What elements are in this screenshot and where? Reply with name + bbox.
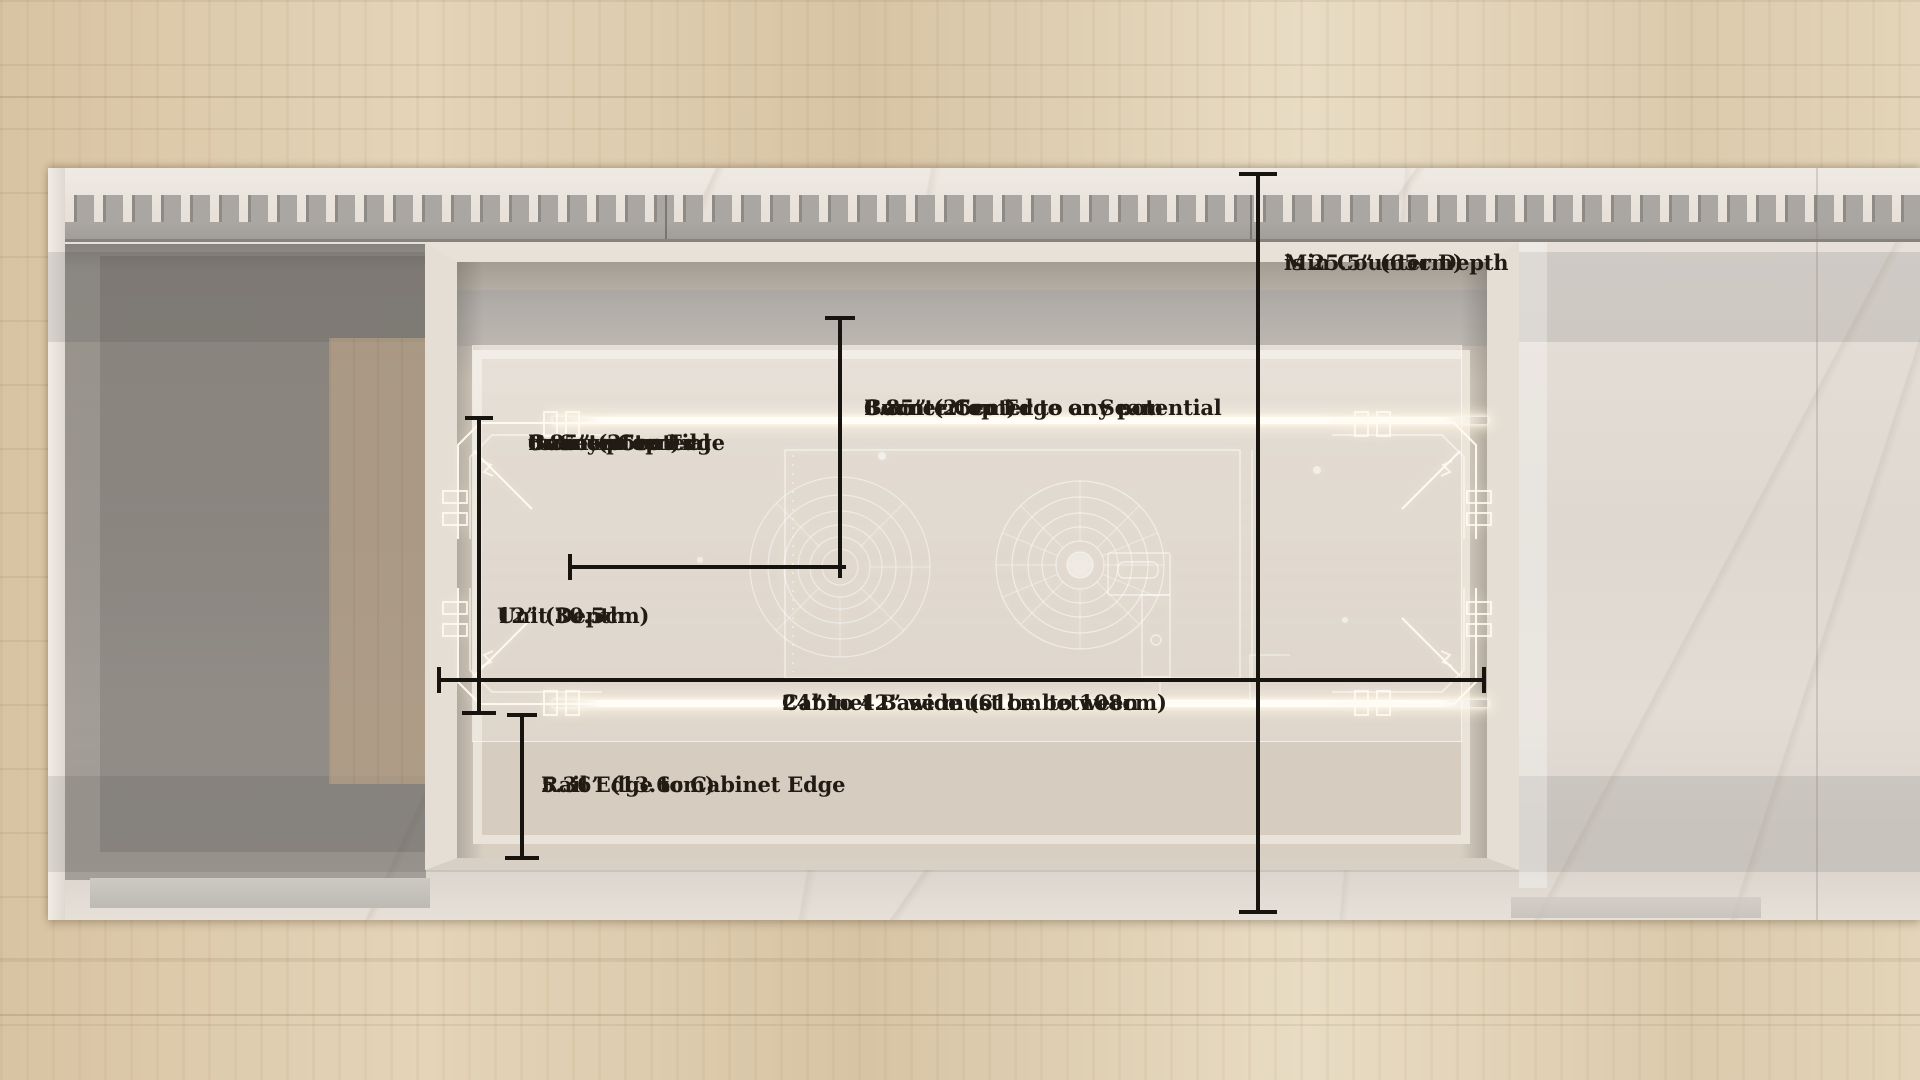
cooktop-installation-diagram: Min Counter Depth is 25.5” (65cm) 8.85” …: [0, 0, 1920, 1080]
dim-line-rail-edge: [520, 713, 524, 860]
cabinet-shadow-band: [457, 290, 1487, 346]
bottom-ledge-right: [1511, 897, 1761, 918]
dim-line-burner-center-vertical: [838, 316, 842, 578]
vent-grille-teeth: [65, 195, 1920, 222]
vent-grille: [65, 195, 1920, 242]
counter-highlight-strip: [1519, 242, 1547, 888]
counter-seam: [1816, 168, 1818, 920]
label-line: Unit Depth: [497, 603, 625, 629]
left-cabinet-opening: [65, 244, 426, 880]
dim-line-unit-depth: [477, 416, 481, 715]
dim-line-burner-center-horizontal: [568, 565, 846, 569]
label-line: Countertop Edge or Seam: [864, 395, 1163, 421]
countertop-slab: [48, 168, 1920, 920]
label-line: or Seam: [528, 430, 623, 456]
label-line: Rail Edge to Cabinet Edge: [541, 772, 845, 798]
vent-grille-seam: [1250, 195, 1252, 239]
wood-plank-seam: [0, 96, 1920, 98]
dim-line-cabinet-base-width: [437, 678, 1486, 682]
left-cabinet-inner-panel: [329, 338, 426, 784]
wood-plank-seam: [0, 1014, 1920, 1016]
label-line: is 25.5” (65cm): [1284, 250, 1463, 276]
vent-grille-bar: [65, 222, 1920, 239]
wood-plank-seam: [0, 958, 1920, 960]
bottom-ledge-left: [90, 878, 430, 908]
vent-grille-seam: [665, 195, 667, 239]
label-line: 24” to 42” wide (61cm to 108cm): [782, 690, 1167, 716]
dim-line-min-counter-depth: [1256, 172, 1260, 914]
